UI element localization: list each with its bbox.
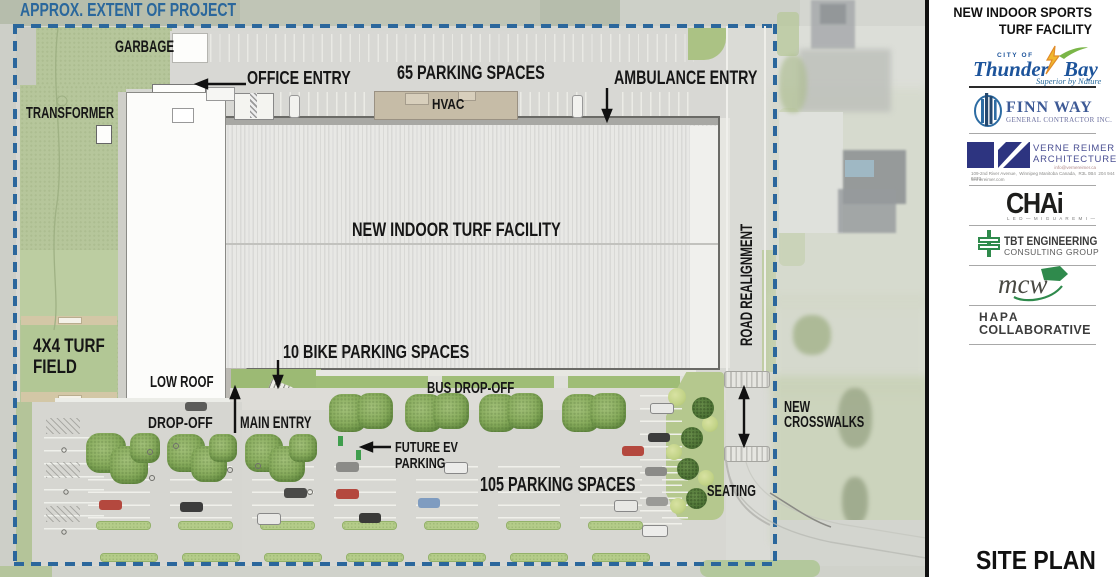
svg-text:mcw: mcw [998, 269, 1048, 299]
